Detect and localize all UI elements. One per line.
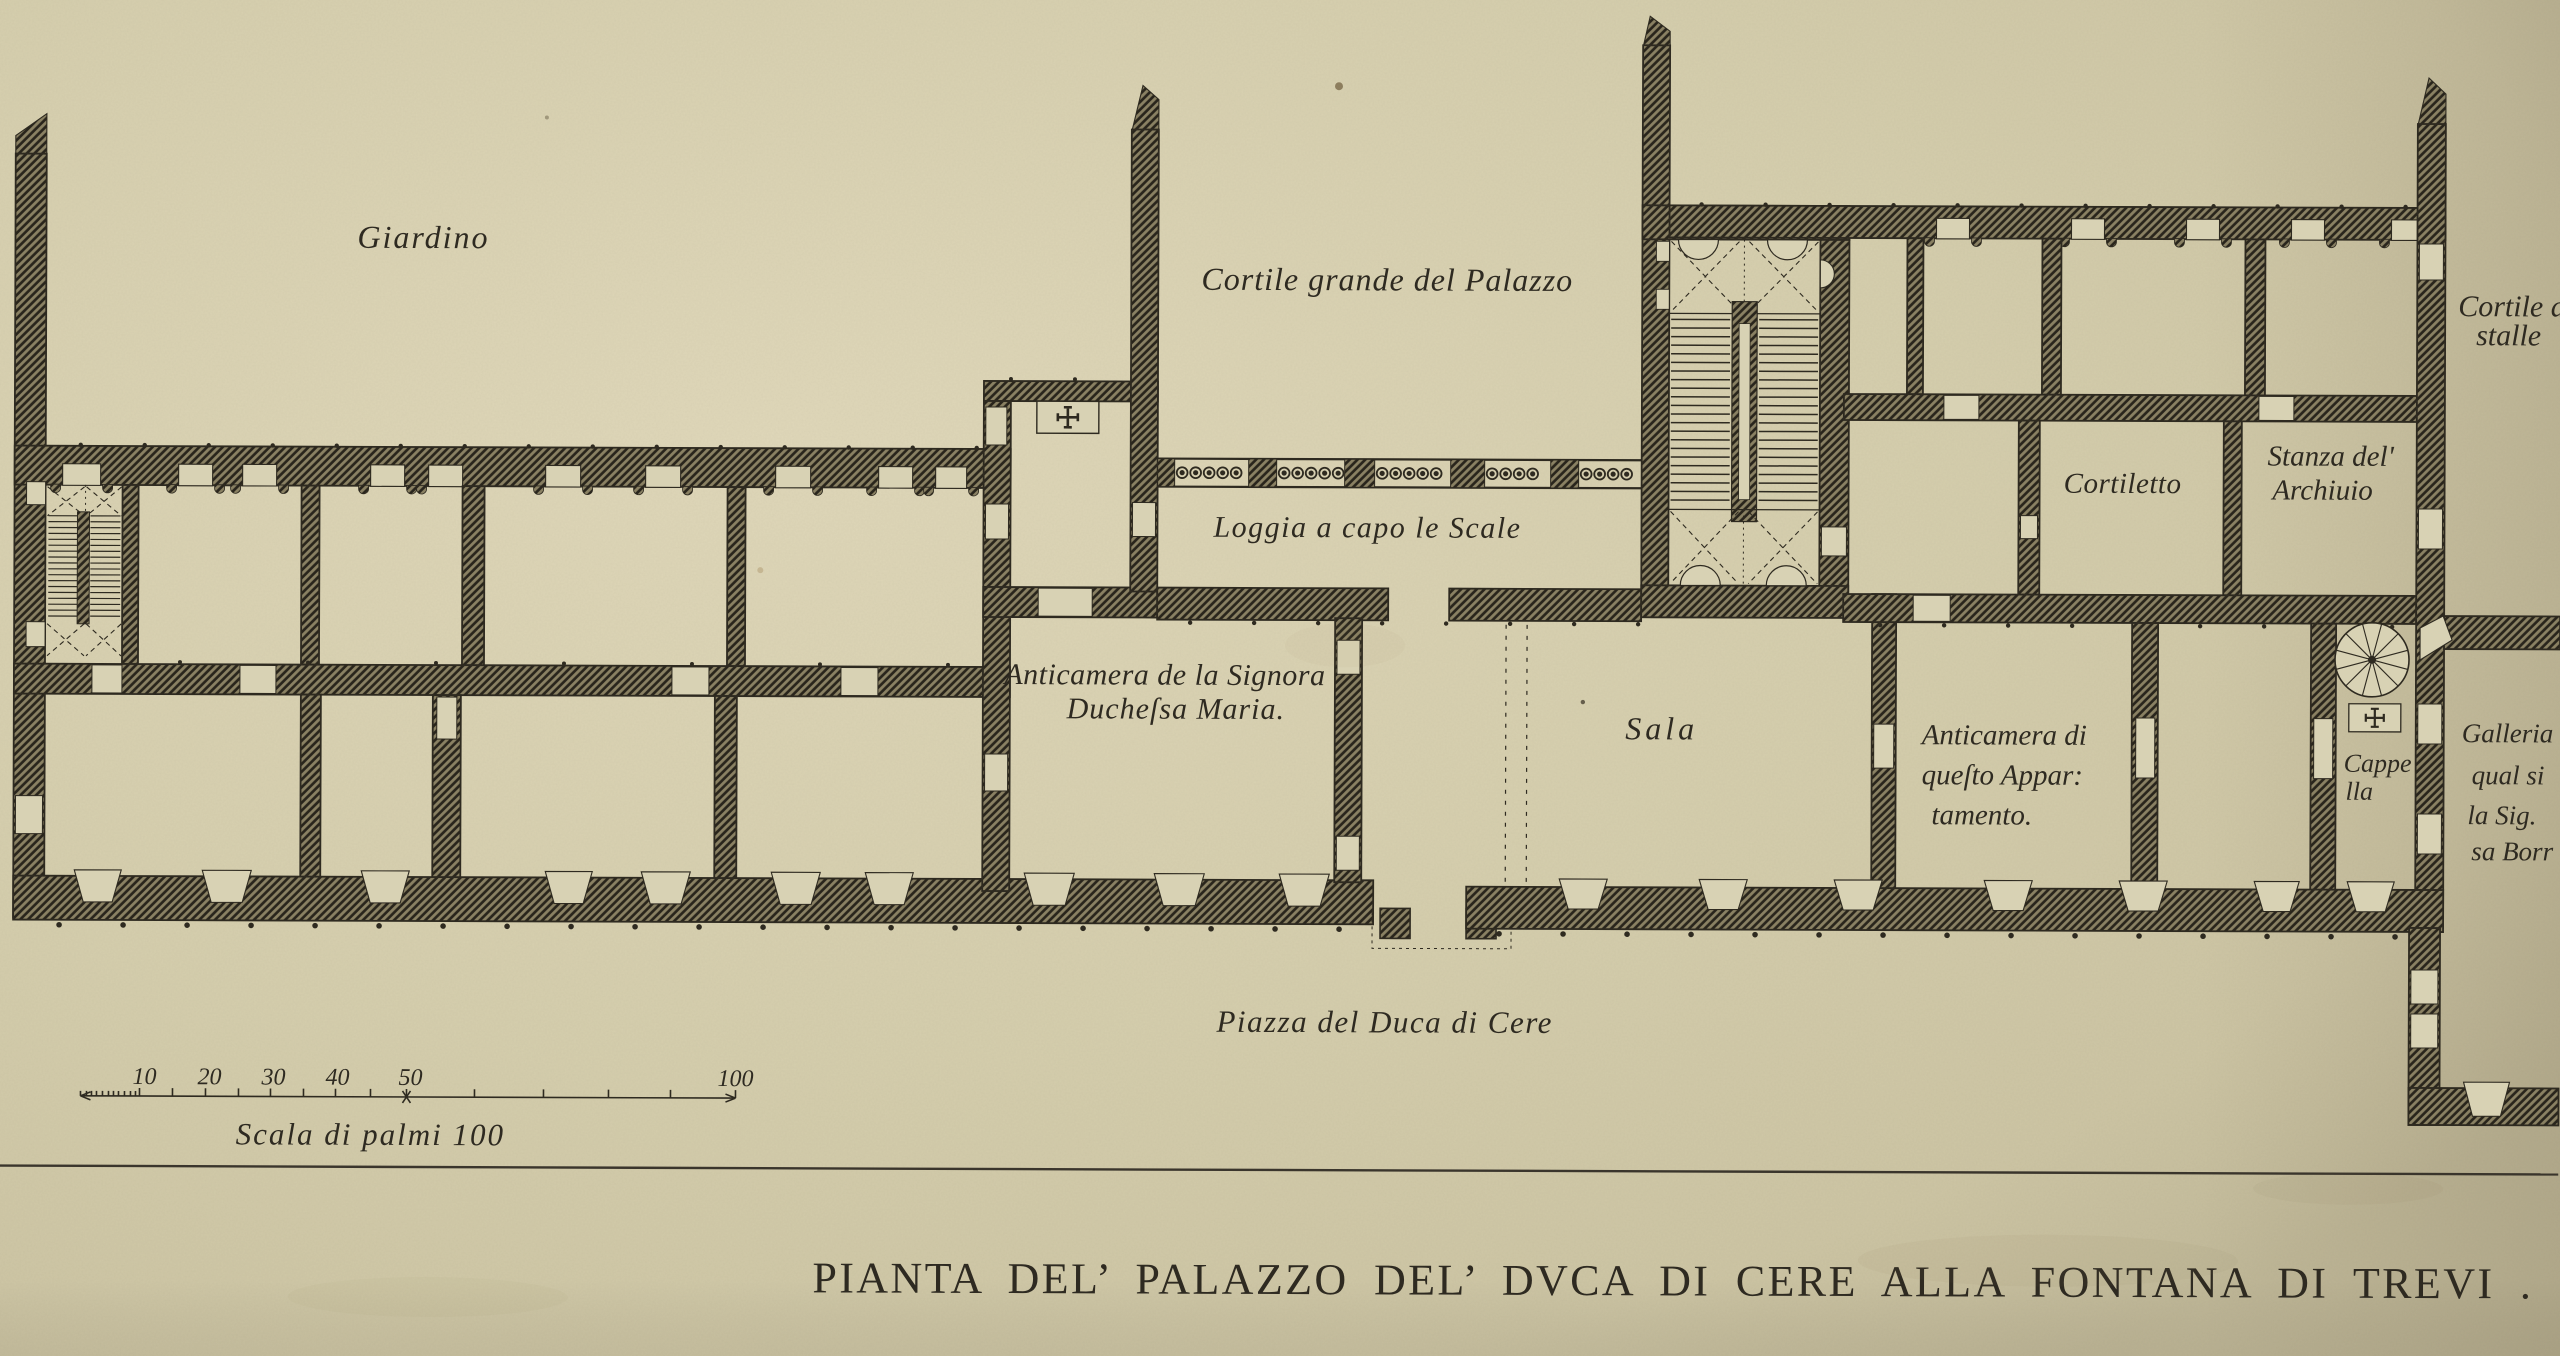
svg-text:sa Borr: sa Borr bbox=[2471, 836, 2553, 866]
svg-text:Giardino: Giardino bbox=[357, 219, 489, 255]
svg-text:Cortiletto: Cortiletto bbox=[2064, 468, 2182, 500]
svg-text:la Sig.: la Sig. bbox=[2467, 800, 2536, 830]
svg-text:Stanza del': Stanza del' bbox=[2268, 440, 2395, 472]
svg-text:30: 30 bbox=[260, 1064, 285, 1090]
svg-text:PIANTA DEL’ PALAZZO DEL’ DVCA: PIANTA DEL’ PALAZZO DEL’ DVCA DI CERE AL… bbox=[812, 1253, 2533, 1308]
svg-text:tamento.: tamento. bbox=[1931, 799, 2032, 831]
svg-text:40: 40 bbox=[325, 1065, 349, 1091]
svg-text:100: 100 bbox=[717, 1066, 753, 1092]
svg-text:qual si: qual si bbox=[2472, 760, 2545, 790]
svg-text:Ducheſsa Maria.: Ducheſsa Maria. bbox=[1066, 692, 1285, 726]
svg-text:Anticamera di: Anticamera di bbox=[1920, 719, 2087, 752]
svg-text:Galleria: Galleria bbox=[2462, 718, 2554, 748]
svg-text:lla: lla bbox=[2345, 777, 2373, 806]
svg-text:20: 20 bbox=[197, 1064, 221, 1090]
svg-text:Archiuio: Archiuio bbox=[2270, 474, 2373, 506]
svg-text:Anticamera de la Signora: Anticamera de la Signora bbox=[1002, 658, 1325, 692]
svg-text:50: 50 bbox=[398, 1065, 422, 1091]
svg-text:Loggia a capo le Scale: Loggia a capo le Scale bbox=[1212, 511, 1521, 545]
svg-text:Scala di palmi 100: Scala di palmi 100 bbox=[236, 1116, 505, 1152]
svg-text:Cappe: Cappe bbox=[2344, 749, 2412, 778]
svg-text:queſto Appar:: queſto Appar: bbox=[1922, 759, 2083, 792]
svg-text:10: 10 bbox=[132, 1064, 156, 1090]
svg-text:stalle: stalle bbox=[2476, 319, 2541, 352]
svg-text:Sala: Sala bbox=[1625, 710, 1698, 746]
svg-text:Cortile grande del Palazzo: Cortile grande del Palazzo bbox=[1201, 261, 1573, 298]
svg-text:Piazza del Duca di Cere: Piazza del Duca di Cere bbox=[1215, 1004, 1553, 1040]
